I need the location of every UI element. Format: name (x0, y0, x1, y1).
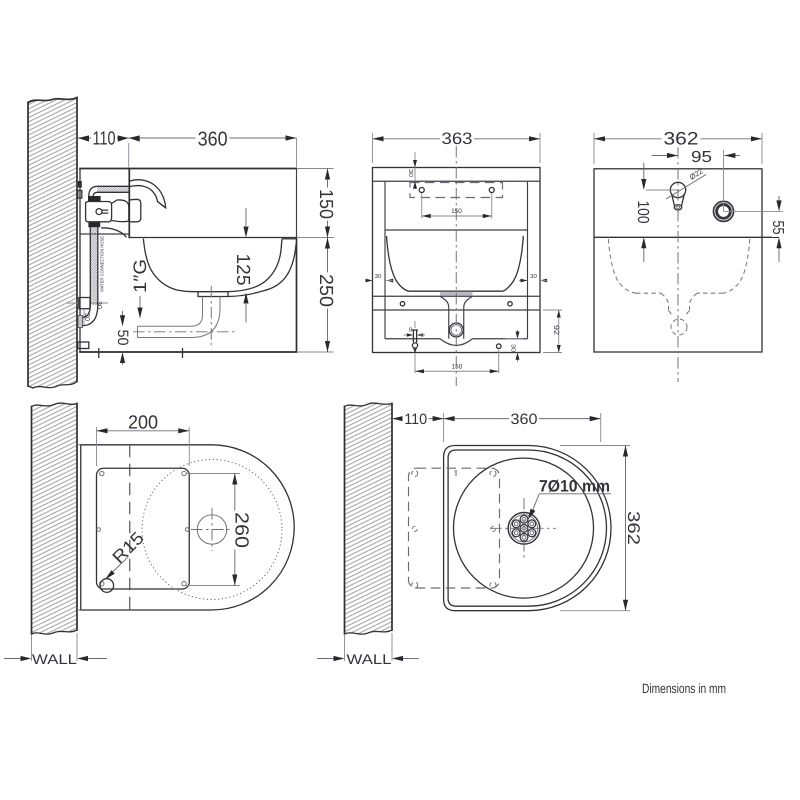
svg-text:95: 95 (691, 149, 712, 166)
svg-text:150: 150 (452, 364, 463, 371)
svg-text:360: 360 (511, 411, 538, 428)
svg-text:363: 363 (442, 130, 473, 148)
svg-text:WATER CONNECTION HOSE: WATER CONNECTION HOSE (100, 236, 105, 292)
svg-text:110: 110 (404, 411, 427, 428)
svg-text:WALL: WALL (347, 651, 392, 667)
svg-text:1″G: 1″G (130, 259, 150, 293)
svg-text:362: 362 (624, 511, 643, 545)
svg-text:150: 150 (315, 189, 336, 219)
svg-text:30: 30 (375, 273, 382, 280)
svg-text:30: 30 (530, 273, 537, 280)
svg-text:30: 30 (510, 344, 517, 353)
svg-text:WALL: WALL (32, 651, 77, 667)
svg-text:50: 50 (114, 330, 131, 346)
svg-text:200: 200 (128, 413, 158, 434)
svg-text:250: 250 (315, 274, 336, 307)
svg-text:Dimensions in mm: Dimensions in mm (642, 681, 726, 696)
svg-text:360: 360 (198, 129, 228, 151)
svg-text:110: 110 (93, 129, 116, 150)
svg-text:7Ø10 mm: 7Ø10 mm (539, 478, 610, 496)
svg-text:30: 30 (407, 169, 414, 178)
svg-text:362: 362 (664, 129, 699, 149)
svg-text:ozti: ozti (453, 470, 458, 476)
svg-text:92: 92 (552, 325, 561, 335)
svg-text:100: 100 (634, 201, 651, 224)
svg-text:125: 125 (232, 254, 253, 286)
svg-text:55: 55 (769, 221, 786, 235)
svg-text:260: 260 (231, 512, 252, 548)
